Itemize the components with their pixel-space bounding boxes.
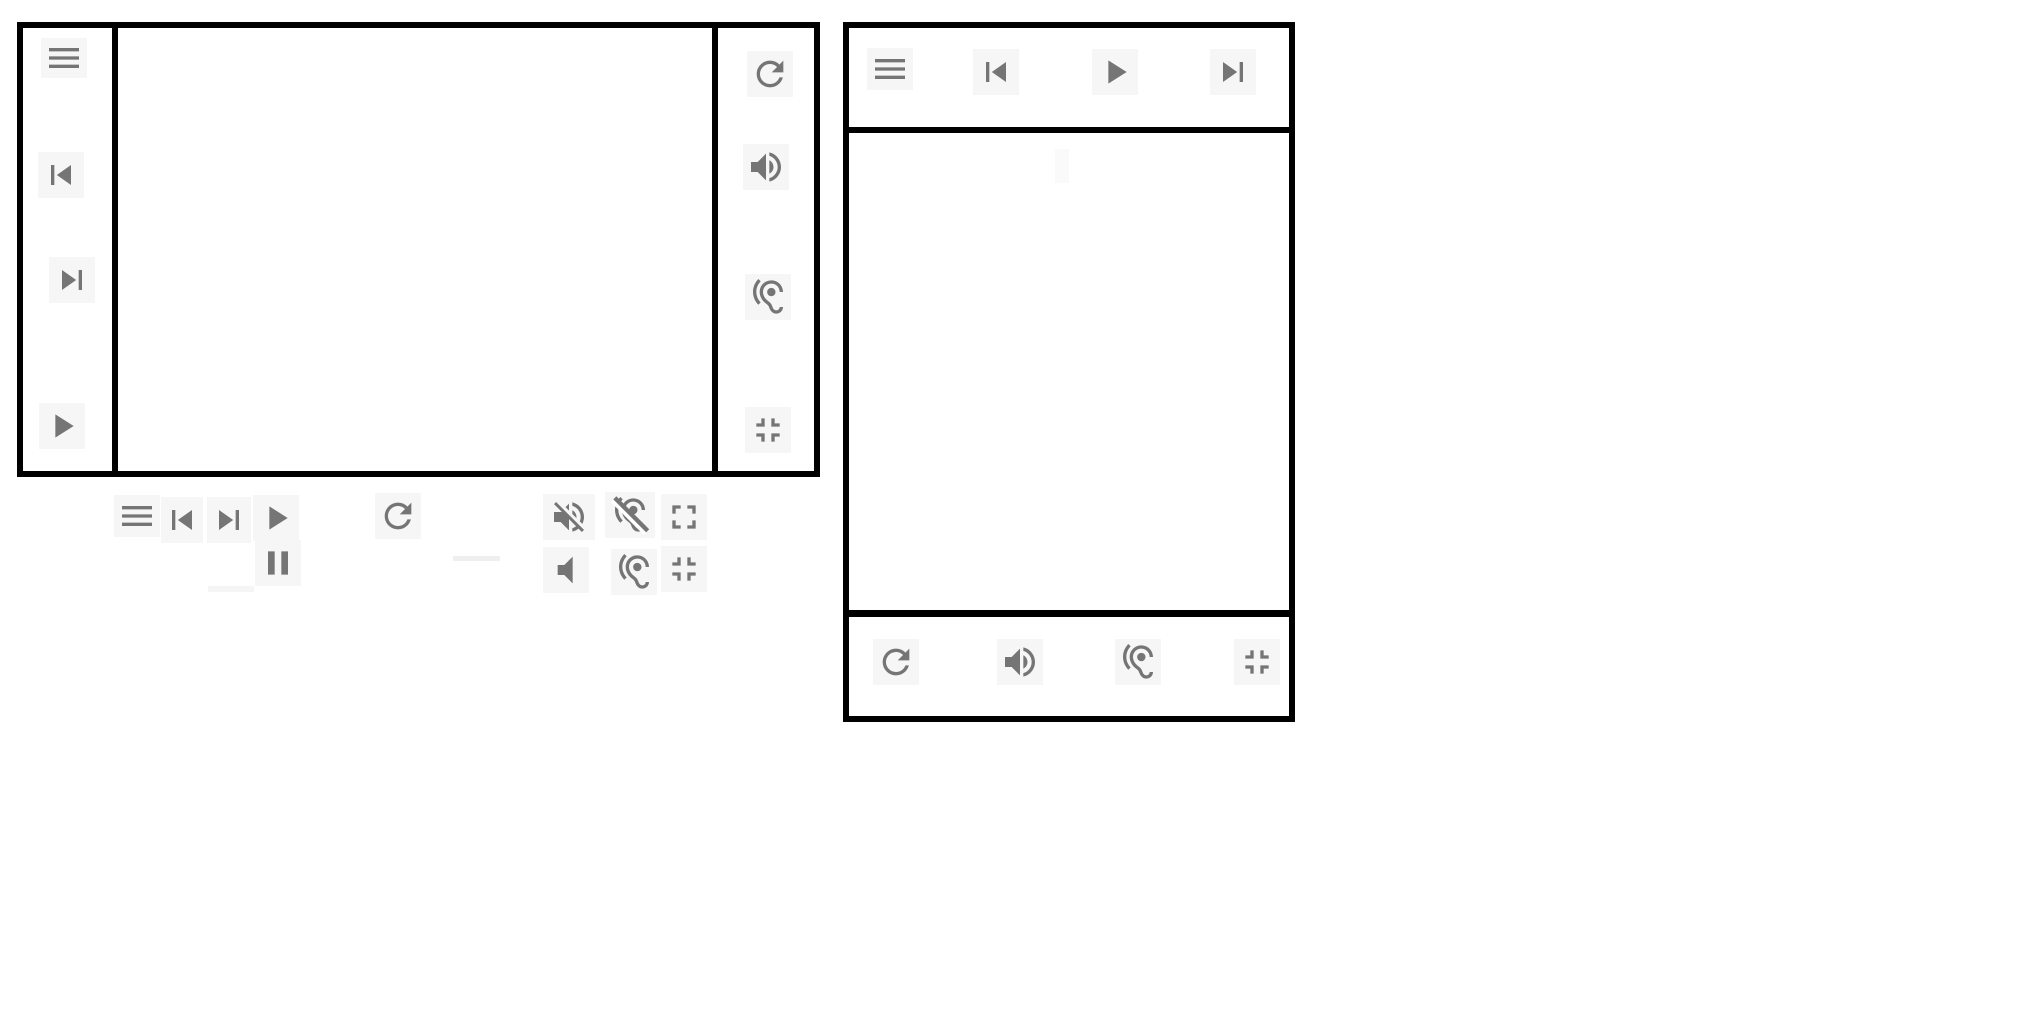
- fullscreen-icon[interactable]: [661, 494, 707, 540]
- menu-icon[interactable]: [114, 495, 160, 537]
- volume-up-icon[interactable]: [743, 144, 789, 190]
- skip-next-icon[interactable]: [1210, 49, 1256, 95]
- player-b-main-area: [849, 133, 1289, 610]
- refresh-icon[interactable]: [375, 493, 421, 539]
- hearing-icon[interactable]: [745, 274, 791, 320]
- desktop-canvas: [0, 0, 2024, 1024]
- hearing-disabled-icon[interactable]: [605, 492, 655, 538]
- skip-previous-icon[interactable]: [38, 152, 84, 198]
- menu-icon[interactable]: [867, 48, 913, 90]
- skip-previous-icon[interactable]: [973, 49, 1019, 95]
- pause-icon[interactable]: [255, 540, 301, 586]
- refresh-icon[interactable]: [873, 639, 919, 685]
- volume-mute-icon[interactable]: [543, 547, 589, 593]
- player-b-bottom-toolbar-divider: [843, 610, 1295, 617]
- hearing-icon[interactable]: [611, 549, 657, 595]
- player-a-main-area: [118, 28, 712, 471]
- player-a-right-toolbar-divider: [712, 22, 718, 477]
- hearing-icon[interactable]: [1115, 639, 1161, 685]
- ghost-placeholder: [1055, 149, 1069, 183]
- skip-next-icon[interactable]: [207, 497, 251, 543]
- fullscreen-exit-icon[interactable]: [661, 546, 707, 592]
- ghost-placeholder: [453, 556, 500, 561]
- play-icon[interactable]: [39, 403, 85, 449]
- play-icon[interactable]: [1092, 49, 1138, 95]
- ghost-placeholder: [208, 586, 254, 592]
- menu-icon[interactable]: [41, 38, 87, 78]
- fullscreen-exit-icon[interactable]: [1234, 639, 1280, 685]
- skip-next-icon[interactable]: [49, 257, 95, 303]
- fullscreen-exit-icon[interactable]: [745, 407, 791, 453]
- volume-off-icon[interactable]: [543, 494, 595, 540]
- volume-up-icon[interactable]: [997, 639, 1043, 685]
- play-icon[interactable]: [253, 495, 299, 541]
- skip-previous-icon[interactable]: [161, 497, 203, 543]
- refresh-icon[interactable]: [747, 51, 793, 97]
